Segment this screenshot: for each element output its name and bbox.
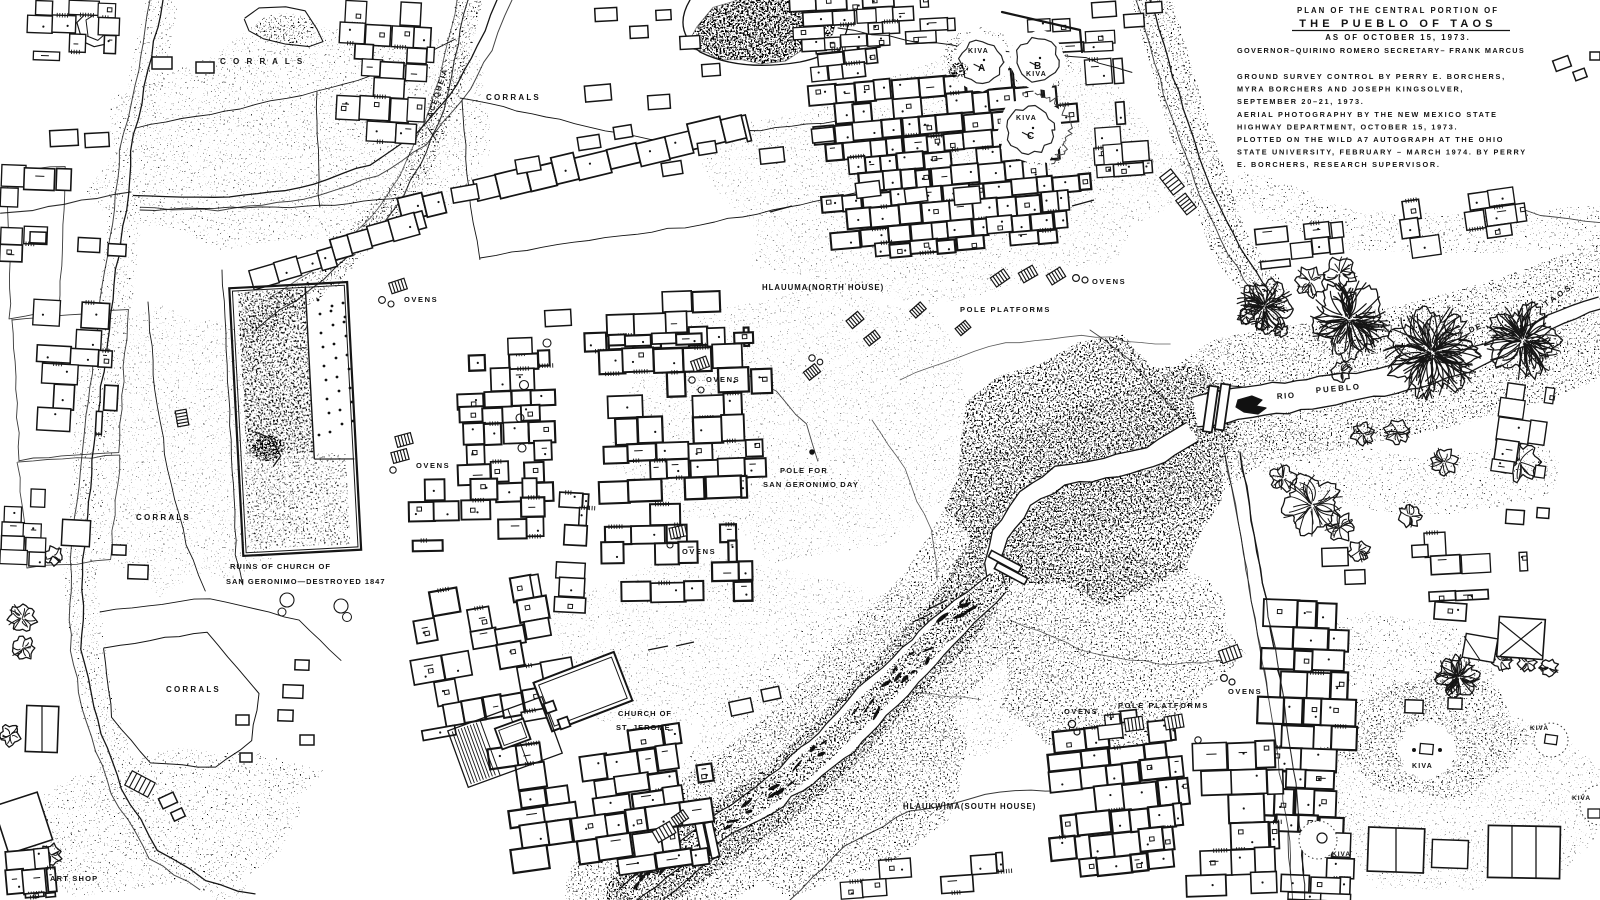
svg-text:C O R R A L S: C O R R A L S	[220, 57, 305, 66]
svg-text:RUINS OF CHURCH OF: RUINS OF CHURCH OF	[230, 562, 331, 571]
svg-text:RIO: RIO	[1277, 391, 1296, 401]
svg-text:GOVERNOR–QUIRINO ROMERO: GOVERNOR–QUIRINO ROMERO SECRETARY– FRANK…	[1237, 46, 1525, 55]
svg-text:OVENS: OVENS	[416, 461, 450, 470]
svg-text:OVENS: OVENS	[404, 295, 438, 304]
svg-text:THE PUEBLO OF TAOS: THE PUEBLO OF TAOS	[1299, 18, 1497, 30]
svg-text:SAN GERONIMO DAY: SAN GERONIMO DAY	[763, 480, 859, 489]
svg-text:OVENS: OVENS	[1092, 277, 1126, 286]
svg-text:KIVA: KIVA	[1530, 725, 1549, 732]
svg-text:CHURCH OF: CHURCH OF	[618, 709, 672, 718]
svg-text:SAN GERONIMO—DESTROYED 1847: SAN GERONIMO—DESTROYED 1847	[226, 577, 386, 586]
svg-text:POLE PLATFORMS: POLE PLATFORMS	[1118, 701, 1209, 710]
svg-text:MYRA BORCHERS AND JOSEPH K: MYRA BORCHERS AND JOSEPH KINGSOLVER,	[1237, 85, 1464, 94]
svg-text:OVENS: OVENS	[682, 547, 716, 556]
svg-text:HIGHWAY DEPARTMENT, OCTOBER: HIGHWAY DEPARTMENT, OCTOBER 15, 1973.	[1237, 122, 1458, 131]
svg-text:AERIAL PHOTOGRAPHY BY THE: AERIAL PHOTOGRAPHY BY THE NEW MEXICO STA…	[1237, 110, 1498, 119]
svg-text:E. BORCHERS, RESEARCH SUPERV: E. BORCHERS, RESEARCH SUPERVISOR.	[1237, 160, 1441, 169]
svg-text:STATE UNIVERSITY, FEBRUARY –: STATE UNIVERSITY, FEBRUARY – MARCH 1974.…	[1237, 148, 1527, 157]
svg-text:CORRALS: CORRALS	[486, 93, 541, 102]
svg-text:OVENS: OVENS	[706, 375, 740, 384]
svg-text:KIVA: KIVA	[1412, 763, 1433, 770]
svg-text:CORRALS: CORRALS	[136, 513, 191, 522]
svg-text:CORRALS: CORRALS	[166, 685, 221, 694]
svg-text:KIVA: KIVA	[1332, 851, 1351, 858]
svg-text:KIVA: KIVA	[1026, 71, 1047, 78]
svg-text:KIVA: KIVA	[968, 48, 989, 55]
svg-text:ST. JEROME: ST. JEROME	[616, 723, 671, 732]
svg-text:SEPTEMBER 20–21, 1973.: SEPTEMBER 20–21, 1973.	[1237, 97, 1364, 106]
svg-text:KIVA: KIVA	[1016, 115, 1037, 122]
svg-text:OVENS: OVENS	[1064, 707, 1098, 716]
svg-text:KIVA: KIVA	[1572, 795, 1591, 802]
svg-text:AS OF OCTOBER 15, 1973.: AS OF OCTOBER 15, 1973.	[1325, 33, 1471, 42]
svg-text:HLAUUMA(NORTH HOUSE): HLAUUMA(NORTH HOUSE)	[762, 283, 884, 292]
svg-text:PLOTTED ON THE WILD A7 AUT: PLOTTED ON THE WILD A7 AUTOGRAPH AT THE …	[1237, 135, 1504, 144]
svg-text:ART SHOP: ART SHOP	[50, 874, 98, 883]
svg-text:POLE FOR: POLE FOR	[780, 466, 828, 475]
svg-text:OVENS: OVENS	[1228, 687, 1262, 696]
svg-text:GROUND SURVEY CONTROL BY P: GROUND SURVEY CONTROL BY PERRY E. BORCHE…	[1237, 72, 1506, 81]
svg-text:POLE PLATFORMS: POLE PLATFORMS	[960, 305, 1051, 314]
svg-text:HLAUKWIMA(SOUTH HOUSE): HLAUKWIMA(SOUTH HOUSE)	[903, 802, 1036, 811]
svg-text:PLAN OF THE CENTRAL PORTIO: PLAN OF THE CENTRAL PORTION OF	[1297, 6, 1499, 15]
